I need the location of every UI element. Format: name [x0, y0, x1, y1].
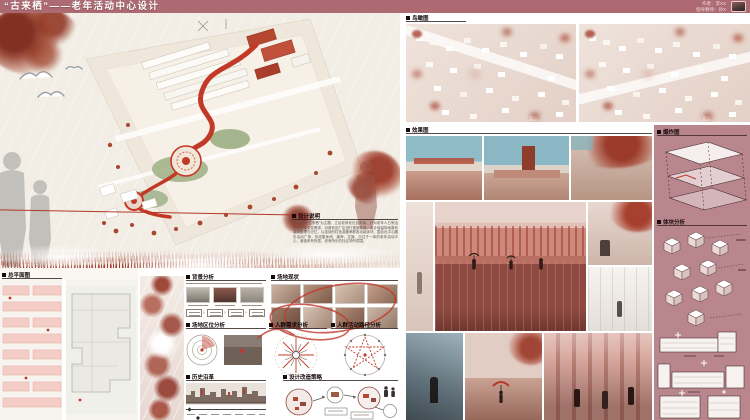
background-photo-1 — [186, 287, 210, 303]
section-label-design-notes: 设计说明 — [292, 212, 320, 220]
timeline-tick-label — [187, 414, 195, 415]
elevation-drawings — [654, 330, 750, 420]
render-photo-hero-pool — [435, 202, 586, 331]
section-label-site-plan: 总平面图 — [2, 271, 30, 279]
section-label-site-status: 场地现状 — [271, 273, 299, 281]
flow-arrow-icon: › — [245, 311, 247, 316]
section-label-site-location: 场地区位分析 — [186, 321, 225, 329]
site-photo-1 — [271, 284, 301, 304]
design-poster-board: 设计说明 本方案以“古来栖”为主题，立足老龄化社会背景，针对老年人日常活动与精神… — [0, 0, 750, 420]
umbrella-people-silhouettes — [463, 250, 563, 272]
design-notes-body: 本方案以“古来栖”为主题，立足老龄化社会背景，针对老年人日常活动与精神文化需求，… — [293, 221, 398, 255]
site-plan-drawing — [0, 280, 138, 420]
site-plan-panel — [0, 268, 138, 420]
exploded-roof-diagram — [656, 138, 748, 214]
massing-cubes-diagram — [656, 228, 748, 328]
render-photo-arcade — [544, 333, 652, 420]
site-location-diagram — [186, 331, 264, 369]
timeline-tick-label — [259, 414, 265, 415]
render-photo-street-night — [406, 333, 463, 420]
red-umbrella-figure — [491, 379, 511, 405]
photo-caption-line — [242, 305, 262, 306]
timeline-tick-label — [211, 414, 219, 415]
section-label-strategy: 设计改造策略 — [283, 373, 322, 381]
flow-arrow-icon: › — [203, 311, 205, 316]
crowd-path-diagram — [332, 330, 398, 380]
section-label-exploded: 爆炸图 — [657, 128, 680, 136]
render-photo-gallery — [588, 267, 652, 331]
render-photo-tree-figure — [588, 202, 652, 265]
flow-box-1 — [186, 309, 202, 317]
flow-box-4 — [249, 309, 265, 317]
timeline-tick-label — [247, 414, 255, 415]
section-label-crowd-needs: 人群需求分析 — [269, 321, 308, 329]
history-skyline — [186, 383, 266, 405]
title-banner: “古来栖”——老年活动中心设计 作者：李XX 指导教师：孙X — [0, 0, 750, 13]
birdview-render-2 — [579, 24, 750, 122]
timeline-axis — [186, 409, 266, 410]
author-avatar — [731, 1, 746, 12]
timeline-tick-label — [199, 414, 207, 415]
timeline-tick-label — [223, 414, 231, 415]
strategy-bubble-diagram — [283, 382, 398, 420]
credits-block: 作者：李XX 指导教师：孙X — [696, 1, 726, 12]
flow-box-2 — [207, 309, 223, 317]
seagull-icons — [16, 57, 92, 113]
site-photo-2 — [303, 284, 333, 304]
section-label-birdview: 鸟瞰图 — [406, 14, 429, 22]
birdview-render-1 — [406, 24, 576, 122]
photo-caption-line — [188, 305, 208, 306]
panel-divider — [400, 13, 405, 420]
site-photo-4 — [367, 284, 398, 304]
flow-box-3 — [228, 309, 244, 317]
render-strip-narrow — [406, 202, 433, 331]
advisor-line: 指导教师：孙X — [696, 7, 726, 13]
section-label-crowd-path: 人群活动路径分析 — [331, 321, 381, 329]
photo-caption-line — [215, 305, 235, 306]
render-photo-street-1 — [406, 136, 482, 200]
collage-strip — [140, 276, 184, 420]
background-caption-line — [186, 283, 262, 284]
site-photo-3 — [335, 284, 365, 304]
renders-rule — [406, 133, 652, 134]
render-photo-foliage — [571, 136, 652, 200]
poster-title: “古来栖”——老年活动中心设计 — [4, 0, 160, 13]
flow-arrow-icon: › — [224, 311, 226, 316]
render-photo-umbrella — [465, 333, 542, 420]
timeline-dots — [187, 407, 191, 411]
background-photo-2 — [213, 287, 237, 303]
section-label-massing: 体块分析 — [657, 218, 685, 226]
section-label-history: 历史沿革 — [186, 373, 214, 381]
render-photo-tower — [484, 136, 569, 200]
background-photo-3 — [240, 287, 264, 303]
timeline-tick-label — [235, 414, 243, 415]
section-label-renders: 效果图 — [406, 126, 429, 134]
section-label-background: 背景分析 — [186, 273, 214, 281]
